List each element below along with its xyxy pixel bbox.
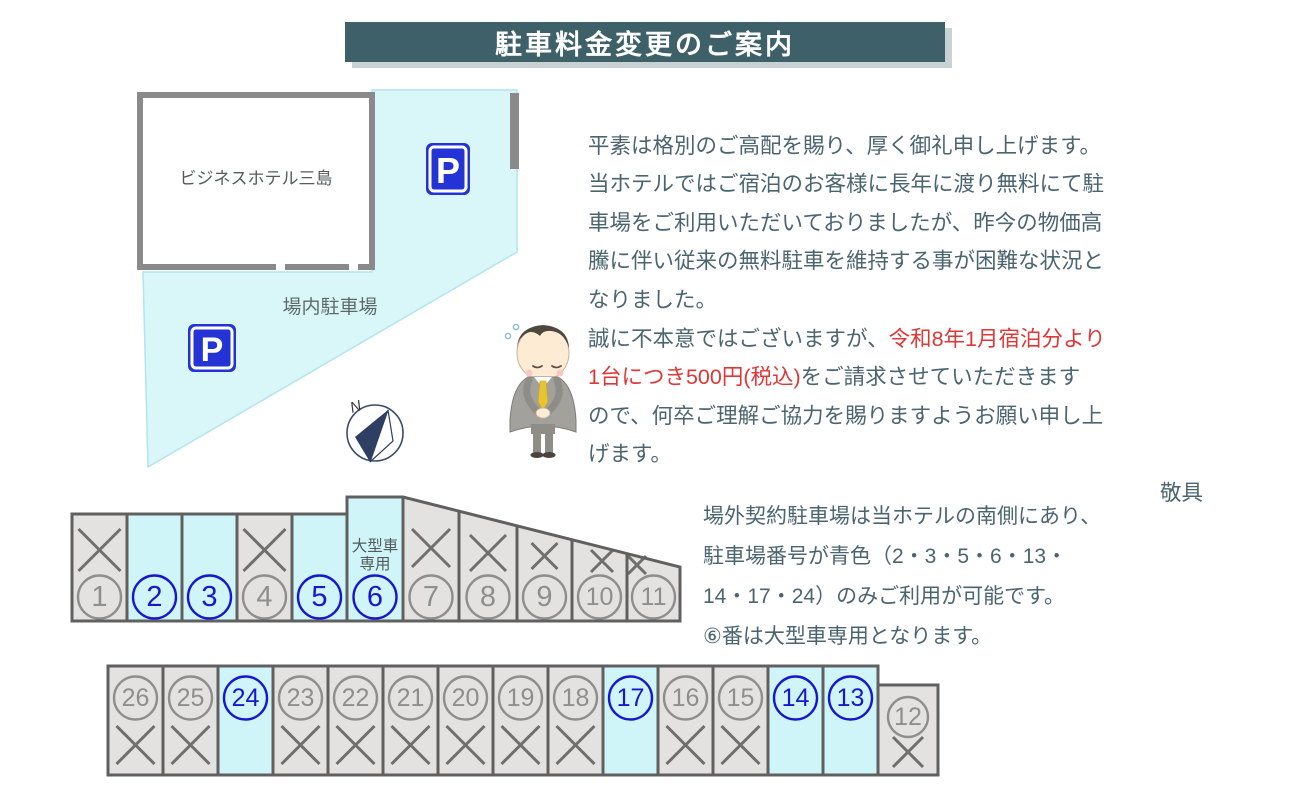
notice-paragraph-1: 平素は格別のご高配を賜り、厚く御礼申し上げます。 当ホテルではご宿泊のお客様に長… xyxy=(588,134,1104,312)
parking-space-12: 12 xyxy=(878,685,938,775)
svg-text:21: 21 xyxy=(397,684,425,712)
parking-space-19: 19 xyxy=(493,666,548,775)
svg-text:25: 25 xyxy=(177,684,205,712)
parking-space-1: 1 xyxy=(72,514,127,621)
svg-text:23: 23 xyxy=(287,684,315,712)
hotel-entrance-gap xyxy=(276,262,285,271)
svg-text:11: 11 xyxy=(641,583,667,611)
svg-text:P: P xyxy=(436,150,460,191)
svg-text:2: 2 xyxy=(146,581,162,613)
parking-space-8: 8 xyxy=(459,511,517,621)
parking-space-4: 4 xyxy=(237,514,292,621)
svg-text:1: 1 xyxy=(91,581,107,613)
parking-space-7: 7 xyxy=(403,497,459,621)
parking-space-13: 13 xyxy=(823,666,878,775)
svg-text:10: 10 xyxy=(586,583,614,611)
parking-space-15: 15 xyxy=(713,666,768,775)
svg-text:7: 7 xyxy=(423,581,439,613)
svg-text:26: 26 xyxy=(122,684,150,712)
page-title: 駐車料金変更のご案内 xyxy=(495,23,795,62)
svg-text:15: 15 xyxy=(727,684,755,712)
parking-space-17: 17 xyxy=(603,666,658,775)
compass-north-label: N xyxy=(348,397,364,417)
svg-text:3: 3 xyxy=(201,581,217,613)
svg-text:8: 8 xyxy=(480,581,496,613)
parking-space-22: 22 xyxy=(328,666,383,775)
svg-text:13: 13 xyxy=(837,684,865,712)
parking-sign-icon: P xyxy=(426,143,470,195)
boundary-wall xyxy=(510,93,519,169)
svg-text:14: 14 xyxy=(782,684,810,712)
bowing-person-illustration xyxy=(505,324,576,458)
parking-space-6: 大型車専用6 xyxy=(347,497,403,621)
parking-space-9: 9 xyxy=(517,526,572,621)
svg-text:専用: 専用 xyxy=(359,555,390,573)
notice-page: 駐車料金変更のご案内 ビジネスホテル三島 場内駐車場 P P N xyxy=(0,0,1300,800)
lot-label: 場内駐車場 xyxy=(282,296,377,318)
svg-text:12: 12 xyxy=(894,703,922,731)
parking-space-5: 5 xyxy=(292,514,347,621)
svg-text:4: 4 xyxy=(256,581,272,613)
parking-space-24: 24 xyxy=(218,666,273,775)
parking-space-18: 18 xyxy=(548,666,603,775)
parking-space-23: 23 xyxy=(273,666,328,775)
parking-sign-icon: P xyxy=(188,324,236,372)
svg-text:16: 16 xyxy=(672,684,700,712)
parking-row-12-26: 262524232221201918171615141312 xyxy=(100,660,950,785)
parking-space-26: 26 xyxy=(108,666,163,775)
parking-space-20: 20 xyxy=(438,666,493,775)
svg-text:大型車: 大型車 xyxy=(352,537,399,555)
parking-space-2: 2 xyxy=(127,514,182,621)
svg-text:6: 6 xyxy=(367,581,383,613)
svg-text:19: 19 xyxy=(507,684,535,712)
parking-space-3: 3 xyxy=(182,514,237,621)
svg-text:20: 20 xyxy=(452,684,480,712)
site-map: ビジネスホテル三島 場内駐車場 P P N xyxy=(130,80,580,480)
notice-paragraph-2: 誠に不本意ではございますが、令和8年1月宿泊分より 1台につき500円(税込)を… xyxy=(588,327,1106,467)
svg-text:9: 9 xyxy=(536,581,552,613)
svg-text:22: 22 xyxy=(342,684,370,712)
svg-text:18: 18 xyxy=(562,684,590,712)
hotel-entrance-gap xyxy=(349,262,358,271)
svg-text:17: 17 xyxy=(617,684,645,712)
parking-space-25: 25 xyxy=(163,666,218,775)
offsite-lot-note: 場外契約駐車場は当ホテルの南側にあり、 駐車場番号が青色（2・3・5・6・13・… xyxy=(703,497,1223,657)
title-banner: 駐車料金変更のご案内 xyxy=(345,22,945,62)
svg-text:5: 5 xyxy=(311,581,327,613)
svg-text:24: 24 xyxy=(232,684,260,712)
notice-text: 平素は格別のご高配を賜り、厚く御礼申し上げます。 当ホテルではご宿泊のお客様に長… xyxy=(588,88,1228,551)
parking-space-14: 14 xyxy=(768,666,823,775)
parking-space-21: 21 xyxy=(383,666,438,775)
compass-icon: N xyxy=(347,397,403,462)
svg-text:P: P xyxy=(201,331,224,369)
parking-space-16: 16 xyxy=(658,666,713,775)
hotel-label: ビジネスホテル三島 xyxy=(180,169,333,188)
parking-row-1-11: 12345大型車専用67891011 xyxy=(60,485,700,630)
